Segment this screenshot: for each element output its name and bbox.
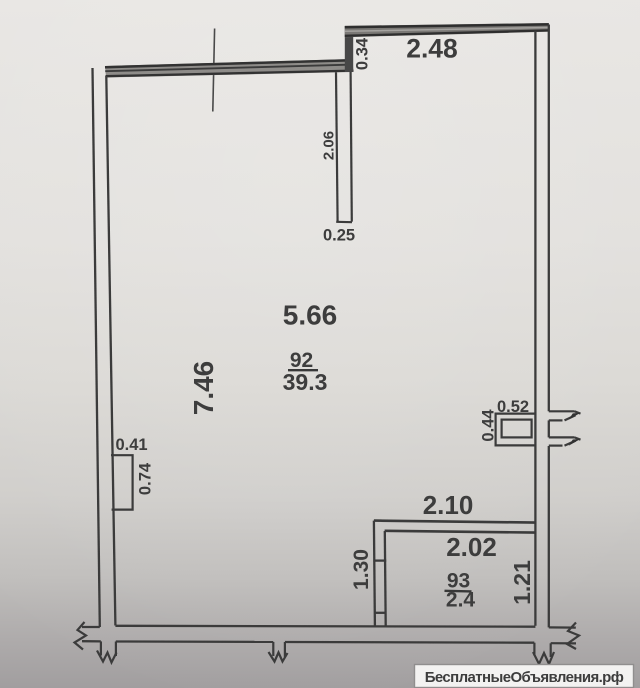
svg-text:0.52: 0.52 bbox=[497, 398, 529, 416]
svg-text:БесплатныеОбъявления.рф: БесплатныеОбъявления.рф bbox=[425, 669, 624, 686]
svg-text:1.21: 1.21 bbox=[509, 560, 535, 605]
svg-text:2.06: 2.06 bbox=[320, 131, 337, 160]
svg-text:2.48: 2.48 bbox=[406, 33, 458, 63]
svg-text:1.30: 1.30 bbox=[350, 549, 373, 590]
svg-text:0.34: 0.34 bbox=[353, 37, 371, 70]
svg-text:7.46: 7.46 bbox=[188, 361, 219, 416]
svg-text:2.4: 2.4 bbox=[446, 589, 476, 612]
svg-text:0.74: 0.74 bbox=[136, 462, 154, 495]
svg-text:2.02: 2.02 bbox=[446, 532, 497, 562]
svg-text:5.66: 5.66 bbox=[283, 300, 338, 331]
svg-text:0.25: 0.25 bbox=[323, 226, 355, 244]
svg-text:39.3: 39.3 bbox=[283, 369, 328, 395]
svg-text:0.44: 0.44 bbox=[479, 409, 497, 442]
svg-text:0.41: 0.41 bbox=[115, 436, 147, 454]
svg-text:2.10: 2.10 bbox=[423, 490, 474, 520]
